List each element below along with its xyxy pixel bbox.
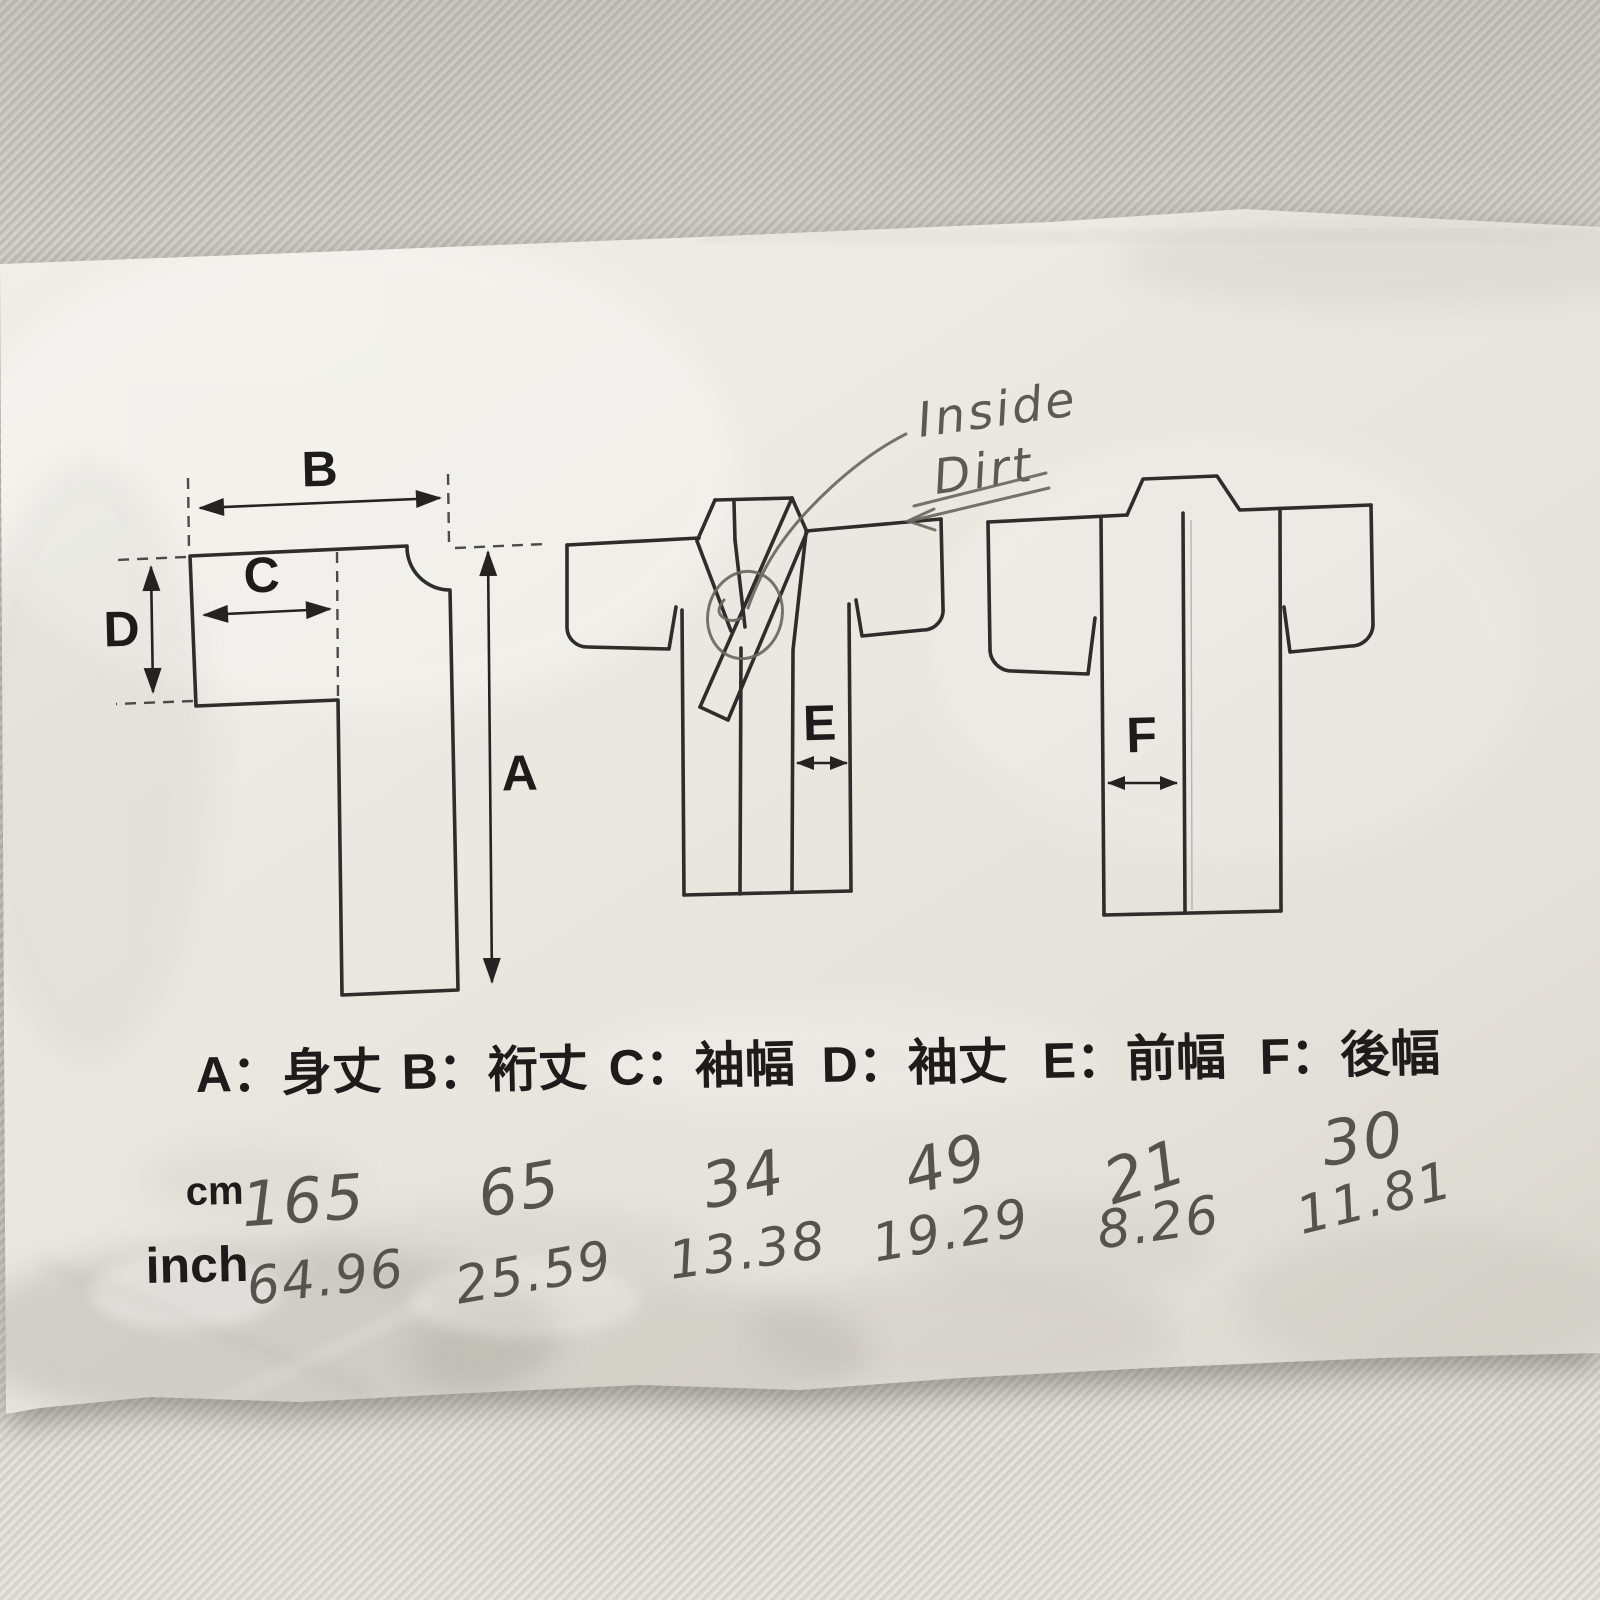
front-body-right-edge [849,604,851,891]
dim-label-c: C [243,547,281,604]
photo-scene: B D C A [0,0,1600,1600]
back-center-seam [1183,513,1185,913]
legend-item-e: E：前幅 [1042,1029,1226,1089]
collar-neck-top [715,498,792,500]
dim-label-e: E [802,695,837,752]
legend-item-d: D：袖丈 [821,1033,1008,1093]
legend-item-c: C：袖幅 [608,1036,795,1096]
unit-label-inch: inch [145,1236,249,1294]
back-body-right-edge [1280,510,1281,911]
dim-label-b: B [301,441,339,498]
legend-item-f: F：後幅 [1259,1025,1441,1085]
front-body-left-edge [682,610,684,895]
measurement-sheet-photo: B D C A [0,0,1600,1600]
dim-label-f: F [1126,707,1158,764]
legend-item-a: A：身丈 [195,1043,382,1103]
dim-label-a: A [501,745,539,802]
collar-left-inner [734,502,735,540]
dim-label-d: D [103,601,141,658]
unit-label-cm: cm [185,1169,244,1214]
value-cm-a: 165 [239,1160,368,1241]
value-cm-b: 65 [472,1146,566,1232]
legend-item-b: B：裄丈 [401,1040,588,1100]
